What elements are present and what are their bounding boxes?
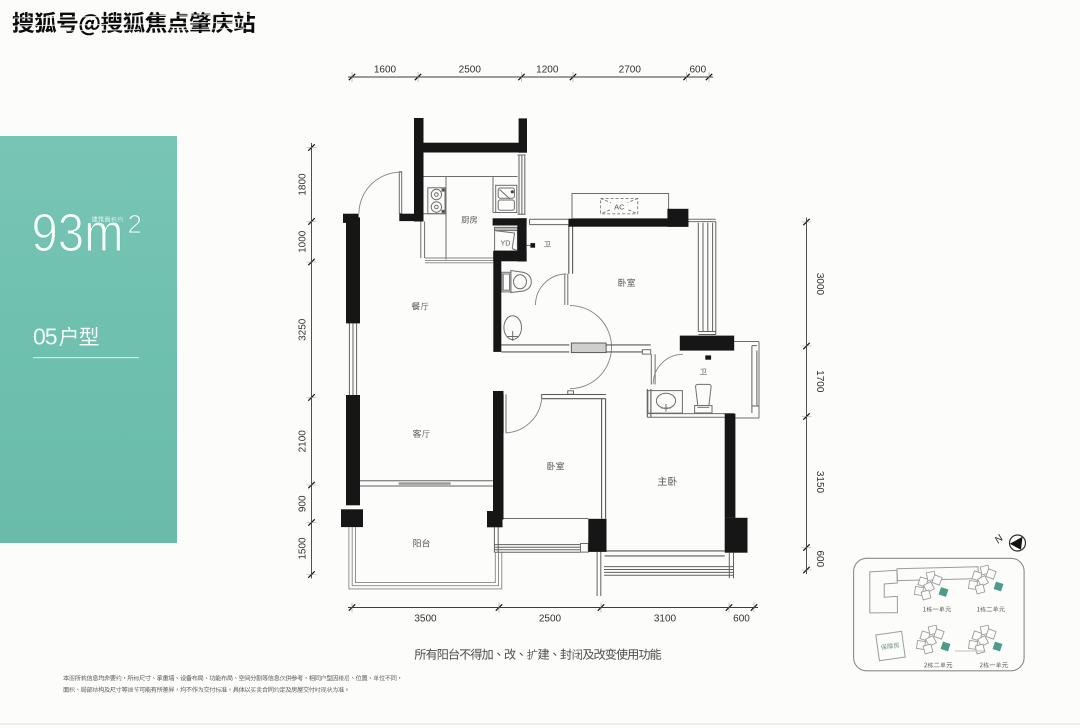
svg-text:600: 600 — [689, 65, 706, 76]
svg-text:1700: 1700 — [814, 370, 825, 393]
svg-text:AC: AC — [614, 202, 625, 211]
svg-text:2700: 2700 — [619, 65, 642, 76]
svg-text:1800: 1800 — [298, 173, 309, 196]
svg-text:2500: 2500 — [459, 65, 482, 76]
svg-text:2100: 2100 — [298, 430, 309, 453]
svg-text:2500: 2500 — [539, 614, 562, 625]
svg-text:YD: YD — [501, 238, 511, 247]
svg-text:3250: 3250 — [298, 318, 309, 341]
svg-text:3500: 3500 — [414, 614, 437, 625]
svg-text:3150: 3150 — [814, 471, 825, 494]
svg-text:1000: 1000 — [298, 230, 309, 253]
svg-text:1600: 1600 — [374, 65, 397, 76]
svg-text:2: 2 — [128, 209, 142, 239]
svg-text:600: 600 — [814, 550, 825, 567]
svg-text:1500: 1500 — [298, 537, 309, 560]
svg-text:900: 900 — [298, 495, 309, 512]
svg-text:3100: 3100 — [654, 614, 677, 625]
svg-text:600: 600 — [733, 614, 750, 625]
svg-text:3000: 3000 — [814, 273, 825, 296]
svg-text:05: 05 — [33, 324, 57, 350]
svg-text:1200: 1200 — [536, 65, 559, 76]
svg-text:93m: 93m — [32, 203, 124, 263]
